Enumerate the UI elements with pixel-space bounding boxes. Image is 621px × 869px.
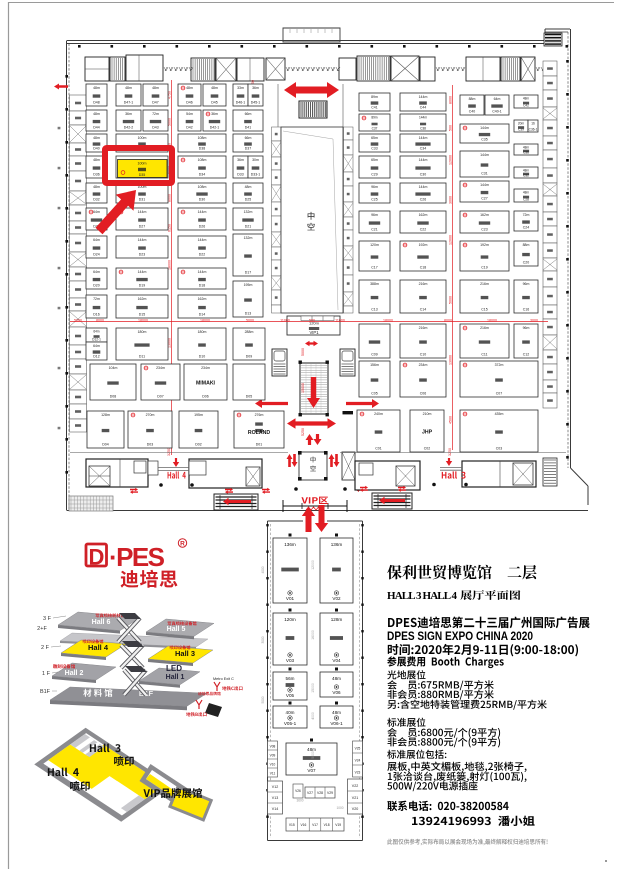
svg-text:C09: C09	[371, 353, 377, 357]
svg-text:C06: C06	[420, 392, 426, 396]
svg-text:D20: D20	[93, 284, 99, 288]
svg-text:144m: 144m	[138, 270, 147, 274]
svg-text:210m: 210m	[423, 412, 432, 416]
svg-text:64m: 64m	[93, 330, 100, 334]
svg-text:C38: C38	[420, 127, 426, 131]
svg-text:276m: 276m	[255, 413, 264, 417]
svg-text:144m: 144m	[480, 126, 489, 130]
svg-text:132m: 132m	[244, 210, 253, 214]
svg-text:192m: 192m	[480, 243, 489, 247]
svg-text:LED: LED	[166, 664, 182, 673]
svg-text:20m: 20m	[518, 122, 525, 126]
svg-text:5000: 5000	[246, 318, 254, 322]
svg-text:D07: D07	[157, 395, 163, 399]
svg-text:144m: 144m	[419, 116, 427, 120]
svg-text:3 F: 3 F	[43, 616, 52, 622]
svg-text:64m: 64m	[93, 238, 100, 242]
svg-text:V01: V01	[286, 596, 295, 601]
svg-text:Hall 1: Hall 1	[166, 674, 185, 681]
svg-text:V14: V14	[272, 807, 278, 811]
svg-text:D35: D35	[139, 173, 146, 177]
svg-text:132m: 132m	[244, 236, 253, 240]
svg-text:2 F: 2 F	[41, 645, 50, 651]
svg-text:144m: 144m	[138, 210, 147, 214]
svg-text:C36: C36	[523, 151, 529, 155]
svg-text:C34: C34	[420, 147, 426, 151]
svg-text:C18: C18	[420, 266, 426, 270]
svg-text:Hall 3: Hall 3	[175, 649, 195, 658]
svg-text:Hall 5: Hall 5	[167, 626, 186, 633]
svg-text:D08: D08	[110, 395, 116, 399]
svg-text:48m: 48m	[523, 146, 530, 150]
svg-text:D12-1: D12-1	[92, 338, 101, 342]
svg-text:C24: C24	[523, 226, 529, 230]
svg-text:D44: D44	[93, 126, 99, 130]
svg-text:144m: 144m	[419, 158, 428, 162]
svg-text:D37: D37	[245, 147, 251, 151]
svg-text:Hall 6: Hall 6	[92, 619, 111, 626]
svg-text:500: 500	[448, 125, 452, 131]
svg-text:144m: 144m	[480, 153, 489, 157]
svg-text:D26: D26	[199, 225, 205, 229]
svg-text:D16: D16	[93, 313, 99, 317]
svg-text:88m: 88m	[469, 97, 476, 101]
svg-text:C26: C26	[420, 198, 426, 202]
svg-text:72m: 72m	[152, 112, 159, 116]
svg-text:D22: D22	[199, 253, 205, 257]
svg-text:136m: 136m	[284, 542, 296, 547]
svg-text:48m: 48m	[125, 86, 132, 90]
svg-text:D46-1: D46-1	[236, 101, 246, 105]
svg-text:4000: 4000	[261, 566, 265, 573]
svg-text:C25: C25	[371, 198, 377, 202]
svg-text:64m: 64m	[93, 270, 100, 274]
svg-text:1 F: 1 F	[42, 671, 51, 677]
svg-text:5000: 5000	[448, 296, 452, 304]
svg-text:D14: D14	[199, 313, 205, 317]
svg-text:48m: 48m	[93, 86, 100, 90]
svg-text:Hall 4: Hall 4	[88, 643, 109, 652]
svg-text:48m: 48m	[245, 185, 252, 189]
svg-text:3250: 3250	[167, 448, 171, 456]
svg-text:54m: 54m	[186, 112, 193, 116]
svg-text:D06: D06	[202, 395, 208, 399]
svg-text:18000: 18000	[487, 318, 497, 322]
svg-text:4000: 4000	[311, 712, 315, 720]
svg-text:D03: D03	[147, 443, 153, 447]
svg-text:108m: 108m	[198, 185, 207, 189]
svg-text:D05: D05	[246, 395, 252, 399]
svg-text:C41: C41	[371, 106, 377, 110]
svg-text:8000: 8000	[96, 318, 104, 322]
svg-text:36m: 36m	[252, 86, 259, 90]
svg-text:V22: V22	[352, 784, 358, 788]
svg-text:D12: D12	[93, 355, 99, 359]
svg-text:5000: 5000	[74, 318, 82, 322]
svg-text:48m: 48m	[523, 191, 530, 195]
svg-text:D13: D13	[245, 312, 251, 316]
svg-text:D36: D36	[93, 173, 99, 177]
svg-text:56m: 56m	[286, 676, 295, 681]
svg-text:V29: V29	[327, 791, 333, 795]
svg-text:8000: 8000	[444, 318, 452, 322]
svg-text:C15: C15	[481, 308, 487, 312]
svg-text:36m: 36m	[125, 112, 132, 116]
svg-text:V21: V21	[352, 796, 358, 800]
svg-text:48m: 48m	[186, 86, 193, 90]
svg-text:216m: 216m	[419, 282, 428, 286]
svg-text:D41: D41	[245, 126, 251, 130]
svg-text:5000: 5000	[311, 751, 315, 759]
svg-text:48m: 48m	[211, 86, 218, 90]
svg-text:162m: 162m	[419, 213, 428, 217]
svg-text:C28: C28	[523, 198, 529, 202]
svg-text:D42-2: D42-2	[124, 126, 134, 130]
svg-text:R: R	[180, 541, 185, 548]
svg-text:D24: D24	[93, 253, 99, 257]
svg-text:3600: 3600	[296, 799, 303, 803]
svg-text:C13: C13	[371, 308, 377, 312]
svg-text:156m: 156m	[370, 363, 379, 367]
svg-text:C07: C07	[496, 392, 502, 396]
svg-text:V07: V07	[307, 768, 316, 773]
svg-text:288m: 288m	[245, 330, 254, 334]
svg-text:5000: 5000	[261, 696, 265, 703]
svg-text:128m: 128m	[101, 413, 110, 417]
svg-text:216m: 216m	[480, 326, 489, 330]
svg-text:C20: C20	[523, 261, 529, 265]
svg-text:234m: 234m	[201, 366, 210, 370]
svg-text:72m: 72m	[523, 213, 530, 217]
svg-text:66m: 66m	[245, 112, 252, 116]
svg-text:36m: 36m	[211, 112, 218, 116]
svg-text:V24: V24	[355, 759, 361, 763]
svg-text:D09: D09	[246, 355, 252, 359]
svg-text:C37: C37	[372, 127, 378, 131]
svg-text:18000: 18000	[383, 318, 393, 322]
svg-text:3250: 3250	[448, 448, 452, 456]
svg-text:V17: V17	[312, 823, 318, 827]
svg-text:108m: 108m	[198, 136, 207, 140]
svg-text:C19: C19	[481, 266, 487, 270]
svg-text:234m: 234m	[156, 366, 165, 370]
svg-text:C31: C31	[481, 172, 487, 176]
svg-text:100m: 100m	[138, 136, 147, 140]
svg-text:V06: V06	[332, 690, 341, 695]
svg-text:33m: 33m	[237, 86, 244, 90]
svg-text:D45-1: D45-1	[251, 101, 261, 105]
svg-text:JHP: JHP	[422, 430, 433, 436]
svg-text:Metro Exit C: Metro Exit C	[213, 677, 234, 681]
svg-text:2+F: 2+F	[37, 626, 47, 632]
svg-text:216m: 216m	[480, 282, 489, 286]
svg-text:96m: 96m	[523, 282, 530, 286]
svg-text:500: 500	[309, 318, 315, 322]
svg-text:180m: 180m	[138, 330, 147, 334]
svg-text:88m: 88m	[523, 243, 530, 247]
svg-text:C40-1: C40-1	[492, 110, 502, 114]
svg-text:66m: 66m	[245, 136, 252, 140]
svg-text:195m: 195m	[194, 413, 203, 417]
svg-text:D11: D11	[139, 355, 145, 359]
svg-text:64m: 64m	[93, 344, 100, 348]
svg-text:D47-1: D47-1	[124, 101, 134, 105]
svg-text:65m: 65m	[371, 136, 378, 140]
svg-text:·PES: ·PES	[109, 542, 165, 572]
svg-text:192m: 192m	[419, 243, 428, 247]
svg-text:48m: 48m	[152, 86, 159, 90]
svg-text:108m: 108m	[198, 158, 207, 162]
svg-text:195m: 195m	[244, 283, 253, 287]
svg-text:12000: 12000	[311, 560, 315, 570]
svg-text:100m: 100m	[138, 162, 147, 166]
svg-text:C12: C12	[523, 353, 529, 357]
svg-text:48m: 48m	[93, 158, 100, 162]
svg-text:162m: 162m	[480, 213, 489, 217]
svg-text:DPES SIGN EXPO CHINA 2020: DPES SIGN EXPO CHINA 2020	[387, 629, 533, 643]
svg-text:16: 16	[531, 122, 535, 126]
svg-text:96m: 96m	[371, 213, 378, 217]
svg-text:48m: 48m	[93, 185, 100, 189]
svg-text:C27: C27	[481, 197, 487, 201]
svg-text:144m: 144m	[138, 238, 147, 242]
svg-text:V20: V20	[352, 807, 358, 811]
svg-text:C17: C17	[371, 266, 377, 270]
svg-text:64m: 64m	[93, 210, 100, 214]
svg-text:V06-1: V06-1	[330, 721, 343, 726]
svg-text:36m: 36m	[237, 158, 244, 162]
svg-text:D25: D25	[245, 198, 251, 202]
svg-text:C36-1: C36-1	[529, 128, 538, 132]
svg-text:V04: V04	[332, 658, 341, 663]
svg-text:V15: V15	[289, 823, 295, 827]
svg-text:144m: 144m	[198, 270, 207, 274]
svg-text:144m: 144m	[480, 183, 489, 187]
svg-text:16000: 16000	[311, 630, 315, 640]
svg-text:372m: 372m	[495, 363, 504, 367]
svg-text:48m: 48m	[93, 112, 100, 116]
svg-text:3000: 3000	[261, 636, 265, 643]
svg-text:48m: 48m	[332, 676, 341, 681]
svg-text:D01: D01	[256, 443, 262, 447]
svg-text:64m: 64m	[494, 97, 501, 101]
svg-text:18000: 18000	[200, 318, 210, 322]
svg-text:D47: D47	[152, 101, 158, 105]
svg-text:V16: V16	[300, 823, 306, 827]
svg-text:V12: V12	[272, 785, 278, 789]
svg-text:96m: 96m	[523, 326, 530, 330]
svg-text:HALL 3 HALL 4: HALL 3 HALL 4	[387, 590, 458, 602]
svg-text:D18: D18	[199, 284, 205, 288]
svg-text:C32: C32	[523, 174, 529, 178]
svg-text:48m: 48m	[523, 169, 530, 173]
svg-text:V09: V09	[270, 754, 276, 758]
svg-text:D34: D34	[199, 173, 205, 177]
svg-text:144m: 144m	[198, 238, 207, 242]
svg-text:C02: C02	[424, 447, 430, 451]
svg-text:136m: 136m	[331, 542, 343, 547]
svg-text:C33: C33	[371, 147, 377, 151]
svg-text:ROLAND: ROLAND	[248, 430, 270, 436]
svg-text:V13: V13	[272, 796, 278, 800]
svg-text:D15: D15	[139, 313, 145, 317]
svg-text:89m: 89m	[371, 116, 378, 120]
svg-text:89m: 89m	[371, 95, 378, 99]
svg-text:C42: C42	[523, 104, 529, 108]
svg-text:144m: 144m	[419, 185, 428, 189]
svg-text:12000: 12000	[448, 235, 452, 245]
svg-text:144m: 144m	[419, 95, 428, 99]
svg-text:72m: 72m	[93, 297, 100, 301]
svg-text:C44: C44	[420, 106, 426, 110]
svg-text:1000: 1000	[336, 806, 343, 810]
svg-text:104m: 104m	[109, 366, 118, 370]
svg-text:D27: D27	[139, 225, 145, 229]
svg-text:C05: C05	[371, 392, 377, 396]
svg-text:D43: D43	[152, 126, 158, 130]
svg-text:C14: C14	[420, 308, 426, 312]
svg-text:D19: D19	[139, 284, 145, 288]
svg-text:C35: C35	[481, 138, 487, 142]
svg-text:5000: 5000	[301, 348, 305, 356]
svg-text:D46: D46	[186, 101, 192, 105]
svg-text:D23: D23	[139, 253, 145, 257]
svg-text:V08: V08	[270, 745, 276, 749]
svg-text:162m: 162m	[198, 297, 207, 301]
svg-text:5250: 5250	[301, 428, 305, 436]
svg-text:240m: 240m	[374, 412, 383, 416]
svg-text:D32: D32	[93, 198, 99, 202]
svg-text:13000: 13000	[448, 355, 452, 365]
svg-text:D33-1: D33-1	[251, 173, 261, 177]
svg-text:120m: 120m	[284, 617, 296, 622]
svg-text:18000: 18000	[138, 318, 148, 322]
svg-text:D10: D10	[199, 355, 205, 359]
svg-text:V02: V02	[332, 596, 341, 601]
svg-text:128m: 128m	[331, 617, 343, 622]
svg-text:234m: 234m	[419, 363, 428, 367]
svg-text:C23: C23	[481, 228, 487, 232]
svg-text:3000: 3000	[448, 196, 452, 204]
svg-text:96m: 96m	[371, 185, 378, 189]
svg-text:C39: C39	[518, 128, 524, 132]
svg-text:D42: D42	[186, 126, 192, 130]
svg-text:D42-1: D42-1	[210, 126, 220, 130]
svg-text:4500: 4500	[448, 416, 452, 424]
svg-text:C21: C21	[371, 228, 377, 232]
svg-text:D38: D38	[199, 147, 205, 151]
svg-text:15000: 15000	[311, 683, 315, 693]
svg-text:270m: 270m	[146, 413, 155, 417]
svg-text:C11: C11	[481, 353, 487, 357]
svg-text:V03: V03	[286, 658, 295, 663]
svg-text:V23: V23	[355, 771, 361, 775]
svg-text:65m: 65m	[371, 158, 378, 162]
svg-text:D30: D30	[199, 198, 205, 202]
svg-text:216m: 216m	[419, 326, 428, 330]
svg-text:162m: 162m	[138, 297, 147, 301]
svg-text:D45: D45	[211, 101, 217, 105]
svg-text:12000: 12000	[448, 155, 452, 165]
svg-text:V05-1: V05-1	[284, 721, 297, 726]
svg-text:D02: D02	[195, 443, 201, 447]
svg-text:D21: D21	[245, 225, 251, 229]
svg-text:D48: D48	[93, 101, 99, 105]
svg-text:120m: 120m	[370, 243, 379, 247]
svg-text:C30: C30	[420, 173, 426, 177]
svg-text:C16: C16	[523, 308, 529, 312]
svg-text:V11: V11	[270, 772, 276, 776]
svg-text:D33: D33	[237, 173, 243, 177]
svg-text:V19: V19	[335, 823, 341, 827]
svg-text:15000: 15000	[301, 383, 305, 393]
svg-text:48m: 48m	[93, 136, 100, 140]
svg-text:144m: 144m	[419, 136, 428, 140]
svg-text:C10: C10	[420, 353, 426, 357]
svg-text:V10: V10	[270, 763, 276, 767]
svg-text:D40: D40	[93, 147, 99, 151]
svg-text:C01: C01	[375, 447, 381, 451]
svg-text:D: D	[89, 545, 105, 570]
svg-text:180m: 180m	[198, 330, 207, 334]
svg-text:11000: 11000	[280, 318, 290, 322]
svg-text:VIP1: VIP1	[309, 330, 319, 335]
svg-text:48m: 48m	[523, 97, 530, 101]
svg-text:144m: 144m	[198, 210, 207, 214]
svg-text:MIMAKI: MIMAKI	[196, 381, 216, 387]
svg-text:30m: 30m	[252, 158, 259, 162]
svg-text:40m: 40m	[286, 710, 295, 715]
svg-text:D31: D31	[139, 198, 145, 202]
svg-text:V25: V25	[355, 747, 361, 751]
svg-text:V28: V28	[317, 791, 323, 795]
svg-text:B1F: B1F	[40, 689, 51, 695]
svg-text:V18: V18	[324, 823, 330, 827]
svg-text:435m: 435m	[495, 412, 504, 416]
svg-text:V27: V27	[307, 791, 313, 795]
svg-text:48m: 48m	[332, 710, 341, 715]
svg-text:C03: C03	[496, 447, 502, 451]
svg-text:11000: 11000	[335, 318, 345, 322]
svg-text:C40: C40	[469, 110, 475, 114]
svg-text:C29: C29	[371, 173, 377, 177]
svg-text:8000: 8000	[448, 96, 452, 104]
svg-text:Hall 2: Hall 2	[65, 670, 84, 677]
svg-text:V05: V05	[286, 693, 295, 698]
svg-text:3000: 3000	[530, 318, 538, 322]
svg-text:D04: D04	[102, 443, 108, 447]
svg-text:V26: V26	[295, 789, 301, 793]
svg-text:D17: D17	[245, 271, 251, 275]
svg-text:C22: C22	[420, 228, 426, 232]
svg-text:388m: 388m	[370, 282, 379, 286]
